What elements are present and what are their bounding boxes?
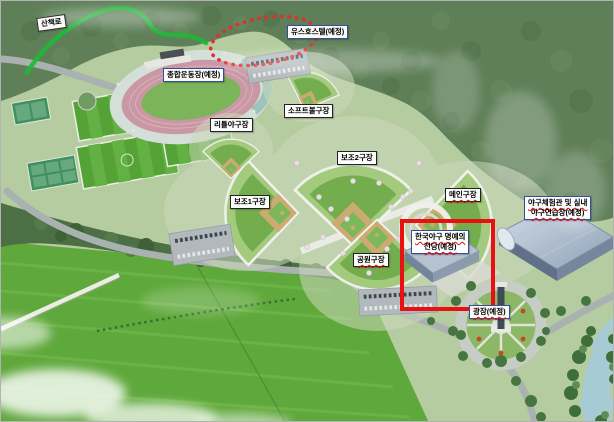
label-general-stadium: 종합운동장(예정): [163, 68, 224, 82]
label-aux-field-2: 보조2구장: [337, 151, 377, 165]
label-main-field: 메인구장: [445, 188, 481, 202]
label-hall-of-fame: 한국야구 명예의 전당(예정): [411, 230, 469, 254]
label-hall-of-fame-line2: 전당(예정): [415, 242, 465, 252]
label-experience-center: 야구체험관 및 실내 야구연습장(예정): [524, 196, 591, 220]
site-aerial-map: 산책로 유스호스텔(예정) 종합운동장(예정) 소프트볼구장 리틀야구장 보조2…: [0, 0, 614, 422]
label-plaza: 광장(예정): [469, 305, 510, 319]
label-hall-of-fame-line1: 한국야구 명예의: [415, 232, 465, 242]
label-aux-field-1: 보조1구장: [230, 195, 270, 209]
label-park-field: 공원구장: [353, 253, 389, 267]
label-experience-center-line2: 야구연습장(예정): [528, 208, 587, 218]
label-main-field-text: 메인구장: [449, 190, 477, 199]
label-youth-hostel: 유스호스텔(예정): [287, 25, 348, 39]
label-experience-center-line1: 야구체험관 및 실내: [528, 198, 587, 208]
label-little-league-field: 리틀야구장: [210, 118, 253, 132]
label-softball-field: 소프트볼구장: [284, 104, 333, 118]
label-park-field-text: 공원구장: [357, 255, 385, 264]
terrain-illustration: [1, 1, 614, 422]
label-plaza-text: 광장(예정): [473, 307, 506, 316]
